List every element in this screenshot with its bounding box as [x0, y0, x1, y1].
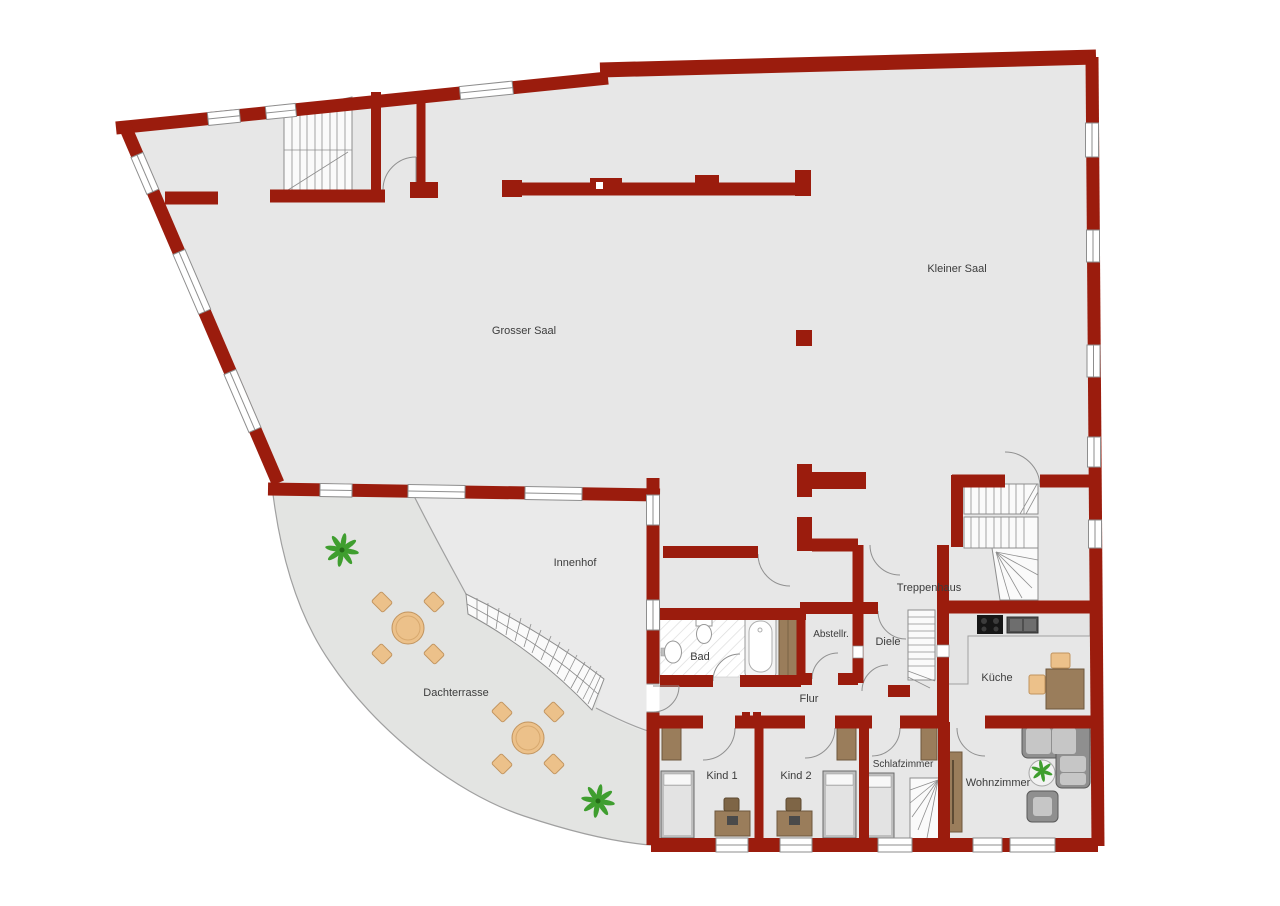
window — [265, 103, 296, 119]
stove — [977, 615, 1003, 634]
wall-opening — [853, 646, 863, 658]
room-label-wohnzimmer: Wohnzimmer — [966, 777, 1031, 789]
room-label-innenhof: Innenhof — [554, 557, 598, 569]
room-label-bad: Bad — [690, 651, 710, 663]
room-label-schlafzimmer: Schlafzimmer — [873, 759, 934, 770]
window — [878, 838, 912, 852]
kitchen-table — [1046, 669, 1084, 709]
pillar — [796, 330, 812, 346]
diele-staircase — [908, 610, 935, 688]
pillar — [753, 712, 761, 720]
room-label-diele: Diele — [875, 636, 900, 648]
room-label-kind-2: Kind 2 — [780, 770, 811, 782]
room-label-kleiner-saal: Kleiner Saal — [927, 263, 986, 275]
window — [408, 485, 465, 499]
toilet — [697, 625, 712, 644]
pillar — [742, 712, 750, 720]
desk-chair — [786, 798, 801, 811]
room-label-abstellraum: Abstellr. — [813, 629, 849, 640]
floor-plan-drawing: Grosser Saal Kleiner Saal Innenhof Dacht… — [0, 0, 1280, 906]
wall-opening — [937, 645, 949, 657]
window — [647, 600, 660, 630]
room-label-grosser-saal: Grosser Saal — [492, 325, 556, 337]
desk-chair — [724, 798, 739, 811]
window — [525, 487, 582, 501]
room-label-flur: Flur — [800, 693, 819, 705]
bathroom-fixtures — [660, 616, 797, 678]
chair — [1029, 675, 1045, 694]
window — [320, 484, 352, 498]
window — [1088, 437, 1101, 467]
desk-monitor — [727, 816, 738, 825]
room-label-treppenhaus: Treppenhaus — [897, 582, 962, 594]
window — [207, 109, 240, 125]
window — [780, 838, 812, 852]
floor-plan: Grosser Saal Kleiner Saal Innenhof Dacht… — [0, 0, 1280, 906]
window — [1087, 230, 1100, 262]
sideboard — [948, 752, 962, 832]
sink — [665, 641, 682, 663]
window — [716, 838, 748, 852]
schlafzimmer-staircase — [910, 778, 940, 840]
room-label-kind-1: Kind 1 — [706, 770, 737, 782]
window — [1089, 520, 1102, 548]
window — [1087, 345, 1100, 377]
window — [647, 495, 660, 525]
window — [1010, 838, 1055, 852]
window — [973, 838, 1002, 852]
room-label-kueche: Küche — [981, 672, 1012, 684]
chair — [1051, 653, 1070, 668]
room-label-dachterrasse: Dachterrasse — [423, 687, 488, 699]
desk-monitor — [789, 816, 800, 825]
window — [1086, 123, 1099, 157]
